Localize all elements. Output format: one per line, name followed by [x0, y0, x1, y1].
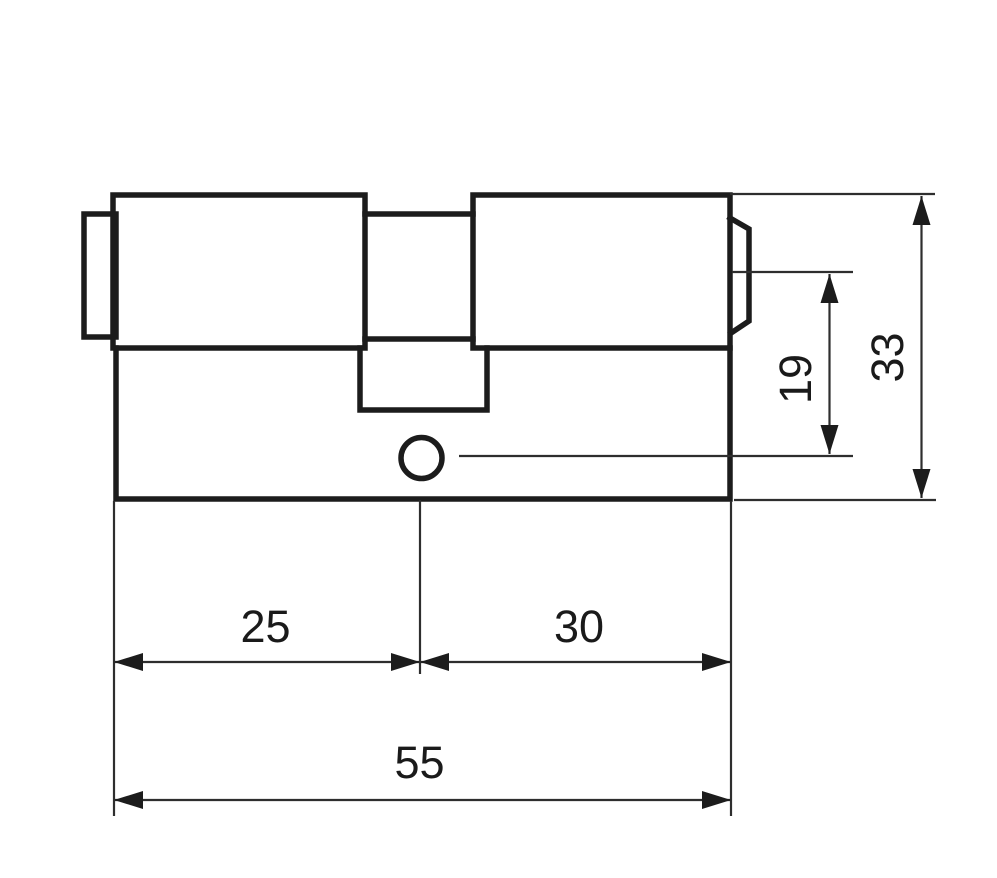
svg-text:19: 19	[770, 354, 821, 404]
svg-text:33: 33	[862, 332, 913, 382]
svg-text:55: 55	[394, 737, 444, 788]
svg-text:30: 30	[554, 601, 604, 652]
svg-text:25: 25	[240, 601, 290, 652]
